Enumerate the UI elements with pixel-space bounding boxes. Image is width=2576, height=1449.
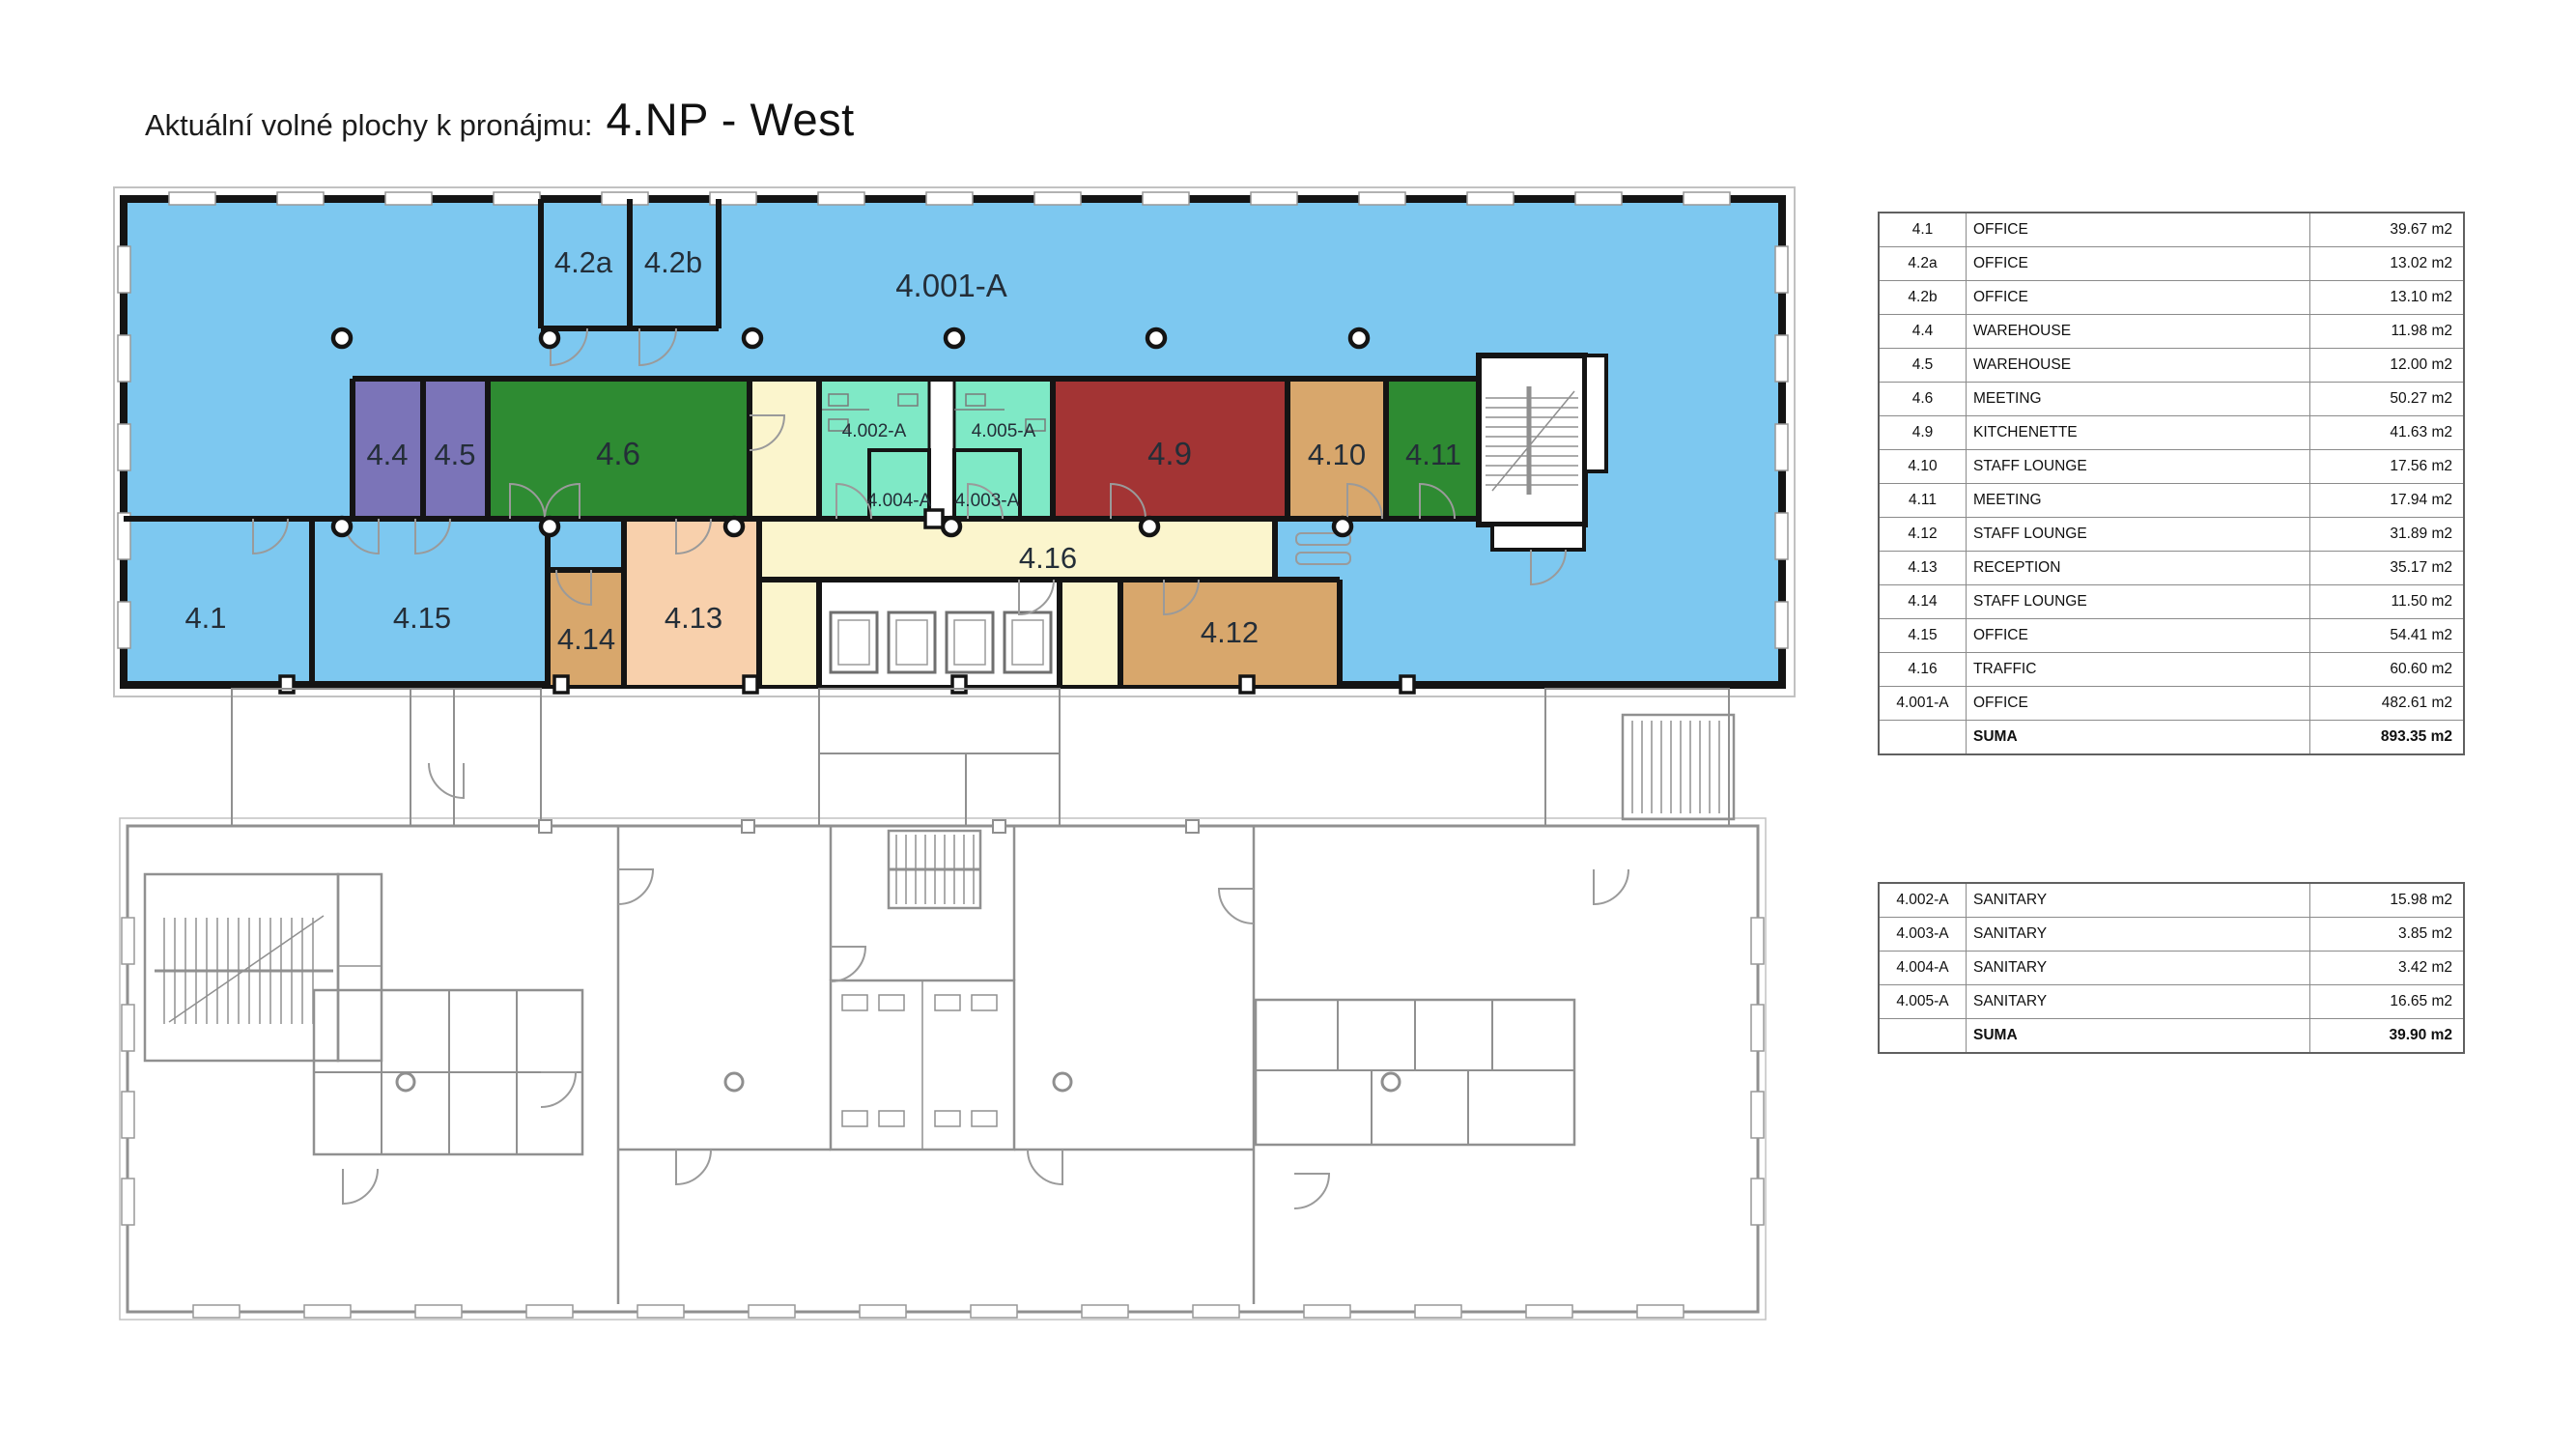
- cell-area: 482.61 m2: [2310, 687, 2463, 720]
- cell-name: STAFF LOUNGE: [1967, 518, 2310, 551]
- cell-name: OFFICE: [1967, 687, 2310, 720]
- table-row: 4.001-AOFFICE482.61 m2: [1880, 687, 2463, 721]
- label-4-004-A: 4.004-A: [867, 491, 932, 511]
- table-row: 4.6MEETING50.27 m2: [1880, 383, 2463, 416]
- cell-name: SUMA: [1967, 1019, 2310, 1052]
- label-4-003-A: 4.003-A: [955, 491, 1020, 511]
- cell-area: 31.89 m2: [2310, 518, 2463, 551]
- cell-id: 4.2b: [1880, 281, 1967, 314]
- table-row: 4.13RECEPTION35.17 m2: [1880, 552, 2463, 585]
- table-row: 4.005-ASANITARY16.65 m2: [1880, 985, 2463, 1019]
- cell-area: 41.63 m2: [2310, 416, 2463, 449]
- cell-id: 4.13: [1880, 552, 1967, 584]
- cell-name: SANITARY: [1967, 952, 2310, 984]
- label-4-005-A: 4.005-A: [972, 421, 1036, 441]
- label-4-16: 4.16: [1019, 541, 1077, 575]
- lower-facade-windows: [122, 918, 1764, 1318]
- cell-area: 16.65 m2: [2310, 985, 2463, 1018]
- label-4-2a: 4.2a: [554, 245, 613, 279]
- cell-area: 13.02 m2: [2310, 247, 2463, 280]
- wc-block-lower: [831, 980, 1014, 1150]
- label-4-001-A: 4.001-A: [895, 268, 1007, 303]
- cell-area: 17.94 m2: [2310, 484, 2463, 517]
- lower-partitions: [618, 826, 1254, 1304]
- cell-name: OFFICE: [1967, 213, 2310, 246]
- table-row: 4.15OFFICE54.41 m2: [1880, 619, 2463, 653]
- columns-lower: [397, 1073, 1400, 1091]
- table-row: 4.16TRAFFIC60.60 m2: [1880, 653, 2463, 687]
- cell-id: [1880, 721, 1967, 753]
- label-4-002-A: 4.002-A: [842, 421, 907, 441]
- label-4-14: 4.14: [557, 622, 615, 656]
- table-row: 4.003-ASANITARY3.85 m2: [1880, 918, 2463, 952]
- main-areas-table: 4.1OFFICE39.67 m24.2aOFFICE13.02 m24.2bO…: [1878, 212, 2465, 755]
- table-row: 4.12STAFF LOUNGE31.89 m2: [1880, 518, 2463, 552]
- table-row: 4.9KITCHENETTE41.63 m2: [1880, 416, 2463, 450]
- table-row: 4.2aOFFICE13.02 m2: [1880, 247, 2463, 281]
- cell-id: 4.12: [1880, 518, 1967, 551]
- cell-id: 4.6: [1880, 383, 1967, 415]
- stair-middle: [889, 831, 980, 908]
- cell-name: MEETING: [1967, 484, 2310, 517]
- table-row: 4.2bOFFICE13.10 m2: [1880, 281, 2463, 315]
- label-4-11: 4.11: [1405, 438, 1461, 471]
- label-4-9: 4.9: [1147, 436, 1192, 471]
- stair-left: [145, 874, 382, 1061]
- cell-id: [1880, 1019, 1967, 1052]
- lower-wing: [120, 689, 1766, 1320]
- cell-id: 4.10: [1880, 450, 1967, 483]
- cell-area: 17.56 m2: [2310, 450, 2463, 483]
- facade-windows-top: [169, 192, 1730, 205]
- table-row: 4.11MEETING17.94 m2: [1880, 484, 2463, 518]
- label-4-1: 4.1: [184, 601, 226, 635]
- corridor-4-16-right: [1060, 580, 1120, 685]
- cell-name: STAFF LOUNGE: [1967, 450, 2310, 483]
- cell-area: 50.27 m2: [2310, 383, 2463, 415]
- cell-id: 4.004-A: [1880, 952, 1967, 984]
- cell-id: 4.5: [1880, 349, 1967, 382]
- cell-area: 893.35 m2: [2310, 721, 2463, 753]
- label-4-2b: 4.2b: [644, 245, 702, 279]
- table-row: 4.004-ASANITARY3.42 m2: [1880, 952, 2463, 985]
- cell-id: 4.15: [1880, 619, 1967, 652]
- cell-name: SANITARY: [1967, 985, 2310, 1018]
- cell-id: 4.1: [1880, 213, 1967, 246]
- label-4-4: 4.4: [366, 438, 408, 471]
- table-row: SUMA893.35 m2: [1880, 721, 2463, 753]
- cell-area: 39.90 m2: [2310, 1019, 2463, 1052]
- cell-name: OFFICE: [1967, 247, 2310, 280]
- cell-id: 4.005-A: [1880, 985, 1967, 1018]
- cell-name: WAREHOUSE: [1967, 349, 2310, 382]
- page: Aktuální volné plochy k pronájmu: 4.NP -…: [0, 0, 2576, 1449]
- label-4-5: 4.5: [434, 438, 475, 471]
- cell-id: 4.16: [1880, 653, 1967, 686]
- corridor-4-16: [759, 519, 1275, 580]
- cell-area: 15.98 m2: [2310, 884, 2463, 917]
- table-row: 4.4WAREHOUSE11.98 m2: [1880, 315, 2463, 349]
- label-4-15: 4.15: [393, 601, 451, 635]
- cell-area: 54.41 m2: [2310, 619, 2463, 652]
- label-4-6: 4.6: [596, 436, 640, 471]
- shaft: [929, 379, 954, 519]
- table-row: 4.002-ASANITARY15.98 m2: [1880, 884, 2463, 918]
- cell-name: TRAFFIC: [1967, 653, 2310, 686]
- cell-id: 4.003-A: [1880, 918, 1967, 951]
- table-row: 4.1OFFICE39.67 m2: [1880, 213, 2463, 247]
- cell-area: 35.17 m2: [2310, 552, 2463, 584]
- cell-area: 60.60 m2: [2310, 653, 2463, 686]
- cell-name: STAFF LOUNGE: [1967, 585, 2310, 618]
- cell-id: 4.002-A: [1880, 884, 1967, 917]
- table-row: SUMA39.90 m2: [1880, 1019, 2463, 1052]
- table-row: 4.10STAFF LOUNGE17.56 m2: [1880, 450, 2463, 484]
- cell-name: SANITARY: [1967, 918, 2310, 951]
- cell-area: 13.10 m2: [2310, 281, 2463, 314]
- cell-area: 39.67 m2: [2310, 213, 2463, 246]
- cell-name: SUMA: [1967, 721, 2310, 753]
- cell-area: 11.98 m2: [2310, 315, 2463, 348]
- cell-id: 4.4: [1880, 315, 1967, 348]
- room-grid-right: [1256, 1000, 1574, 1145]
- label-4-10: 4.10: [1308, 438, 1366, 471]
- label-4-12: 4.12: [1201, 615, 1259, 649]
- cell-area: 3.85 m2: [2310, 918, 2463, 951]
- cell-name: RECEPTION: [1967, 552, 2310, 584]
- door-arcs-lower: [343, 763, 1628, 1208]
- cell-area: 3.42 m2: [2310, 952, 2463, 984]
- wing-connectors: [232, 689, 1729, 826]
- cell-area: 12.00 m2: [2310, 349, 2463, 382]
- cell-id: 4.11: [1880, 484, 1967, 517]
- cell-name: WAREHOUSE: [1967, 315, 2310, 348]
- table-row: 4.14STAFF LOUNGE11.50 m2: [1880, 585, 2463, 619]
- cell-name: SANITARY: [1967, 884, 2310, 917]
- label-4-13: 4.13: [665, 601, 722, 635]
- cell-id: 4.9: [1880, 416, 1967, 449]
- cell-name: OFFICE: [1967, 619, 2310, 652]
- stair-right: [1623, 715, 1734, 819]
- cell-name: MEETING: [1967, 383, 2310, 415]
- cell-area: 11.50 m2: [2310, 585, 2463, 618]
- stairwell: [1479, 355, 1606, 550]
- cell-id: 4.14: [1880, 585, 1967, 618]
- sanitary-areas-table: 4.002-ASANITARY15.98 m24.003-ASANITARY3.…: [1878, 882, 2465, 1054]
- upper-wing: 4.001-A 4.2a 4.2b 4.4 4.5 4.6 4.9 4.10 4…: [114, 187, 1795, 696]
- cell-name: KITCHENETTE: [1967, 416, 2310, 449]
- cell-name: OFFICE: [1967, 281, 2310, 314]
- table-row: 4.5WAREHOUSE12.00 m2: [1880, 349, 2463, 383]
- cell-id: 4.2a: [1880, 247, 1967, 280]
- corridor-4-16-left: [759, 580, 819, 685]
- cell-id: 4.001-A: [1880, 687, 1967, 720]
